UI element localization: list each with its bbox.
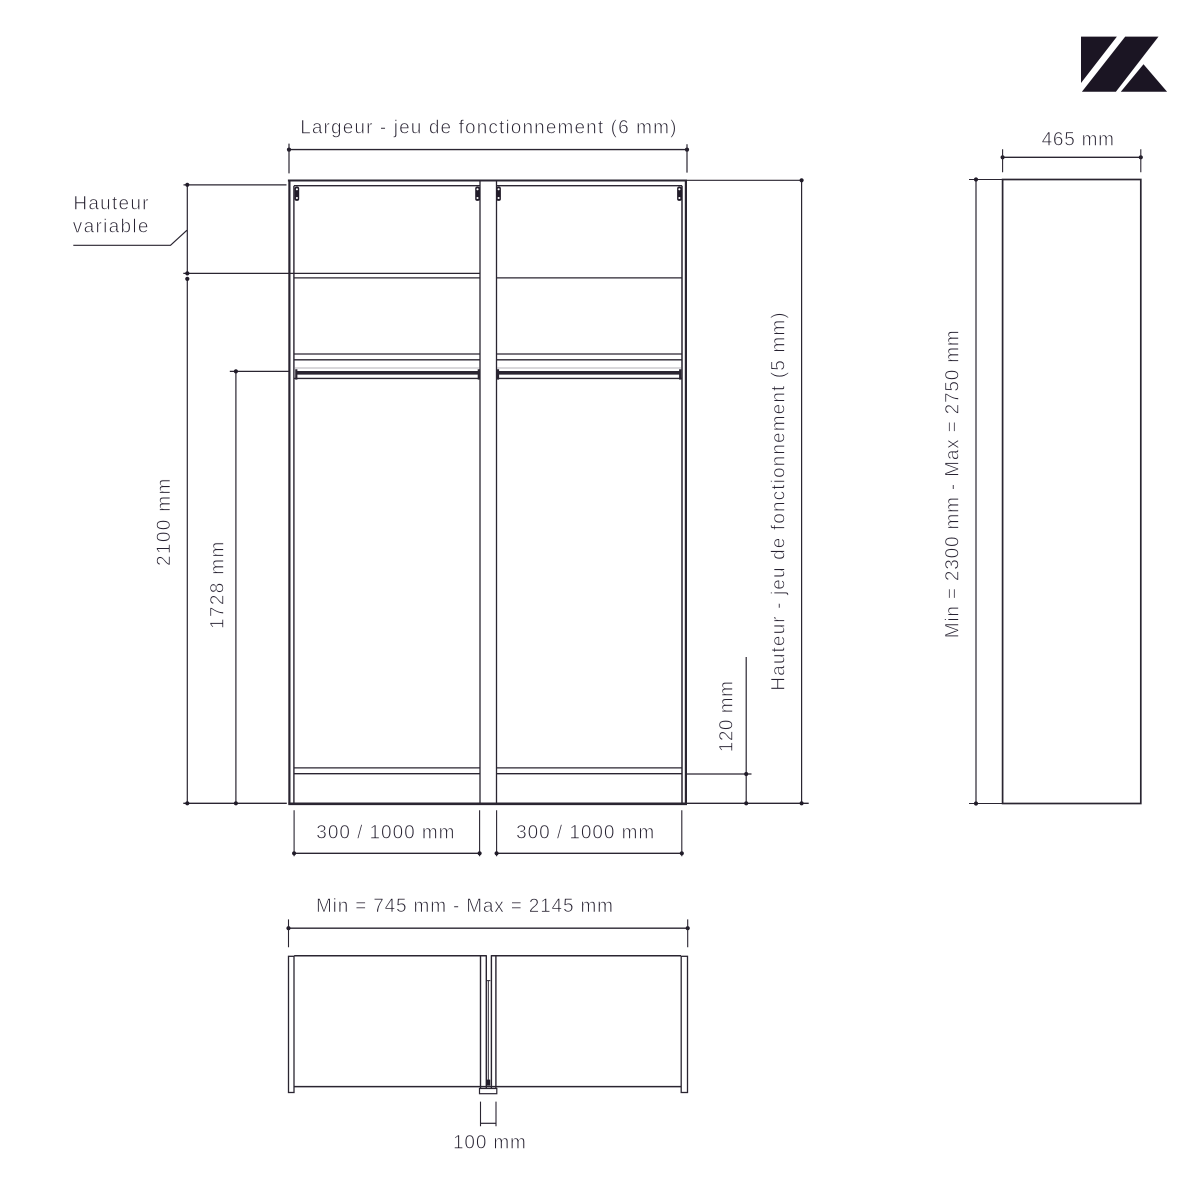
- svg-text:Hauteur: Hauteur: [73, 194, 149, 215]
- svg-text:2100 mm: 2100 mm: [154, 477, 175, 566]
- svg-text:Hauteur - jeu de fonctionnemen: Hauteur - jeu de fonctionnement (5 mm): [769, 311, 790, 690]
- svg-text:1728 mm: 1728 mm: [208, 540, 229, 629]
- svg-text:300 / 1000 mm: 300 / 1000 mm: [516, 822, 655, 843]
- svg-text:Min = 2300 mm - Max = 2750 mm: Min = 2300 mm - Max = 2750 mm: [943, 329, 964, 638]
- svg-text:variable: variable: [73, 217, 150, 238]
- svg-text:465 mm: 465 mm: [1042, 130, 1115, 151]
- svg-text:Largeur - jeu de fonctionnemen: Largeur - jeu de fonctionnement (6 mm): [300, 118, 677, 139]
- svg-text:Min = 745 mm - Max = 2145 mm: Min = 745 mm - Max = 2145 mm: [316, 896, 614, 917]
- svg-text:100 mm: 100 mm: [453, 1133, 527, 1154]
- svg-text:120 mm: 120 mm: [717, 681, 738, 753]
- svg-text:300 / 1000 mm: 300 / 1000 mm: [316, 822, 455, 843]
